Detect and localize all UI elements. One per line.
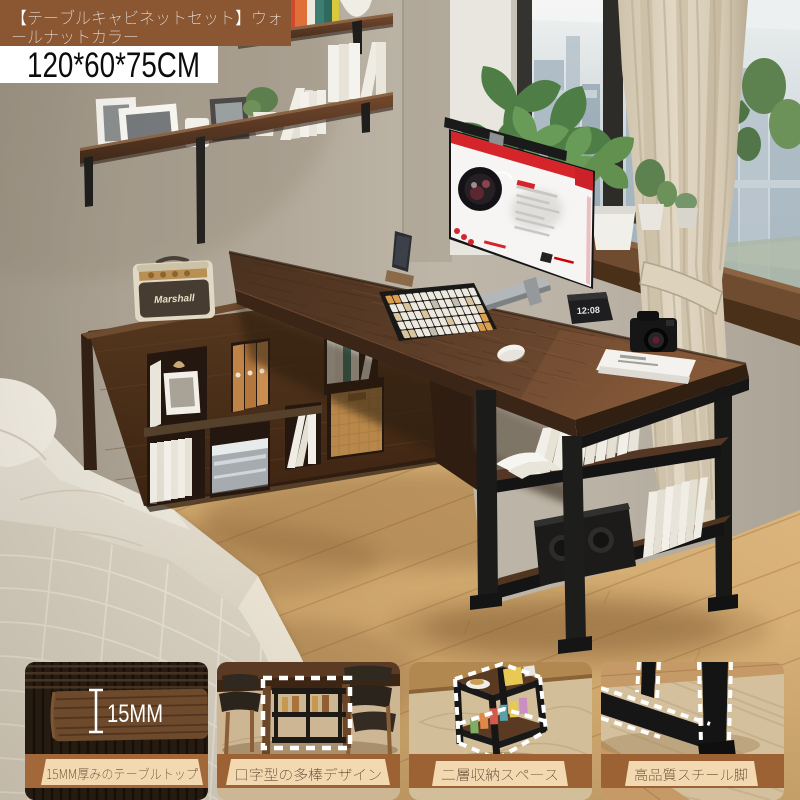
svg-text:120*60*75CM: 120*60*75CM (27, 46, 200, 85)
svg-text:15MM: 15MM (107, 700, 163, 728)
